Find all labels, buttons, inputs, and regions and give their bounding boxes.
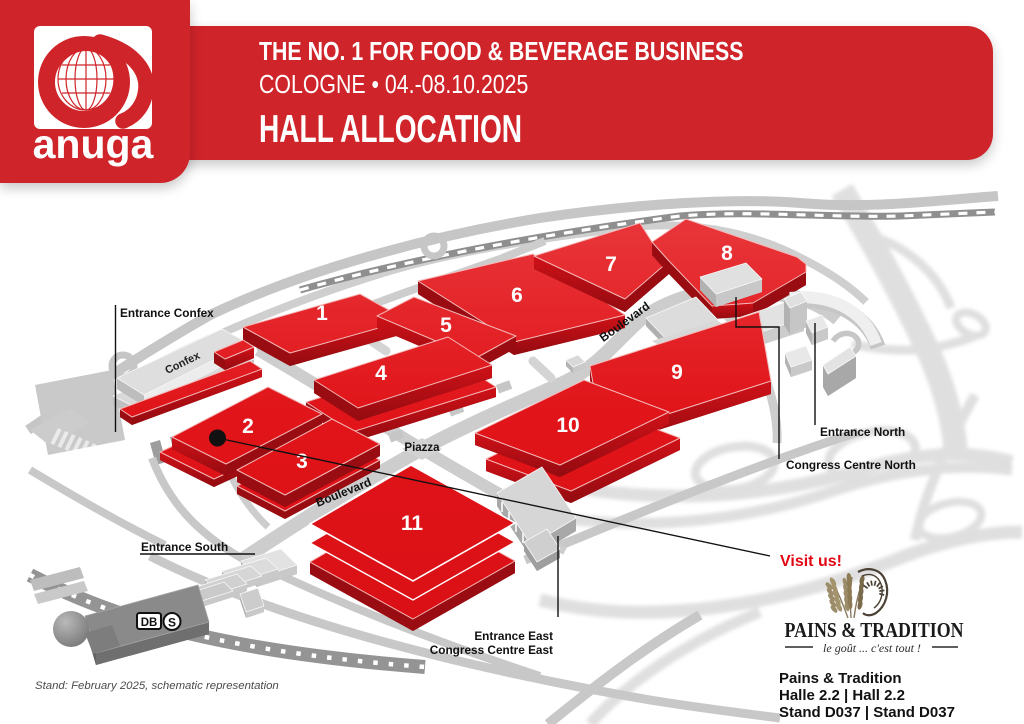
svg-text:Halle 2.2 | Hall 2.2: Halle 2.2 | Hall 2.2 <box>779 687 905 704</box>
svg-text:DB: DB <box>141 617 158 629</box>
svg-text:Congress Centre East: Congress Centre East <box>430 643 553 657</box>
svg-text:PAINS & TRADITION: PAINS & TRADITION <box>785 618 964 642</box>
svg-text:Pains & Tradition: Pains & Tradition <box>779 670 902 687</box>
svg-text:11: 11 <box>401 512 424 535</box>
svg-text:8: 8 <box>721 242 733 265</box>
svg-text:6: 6 <box>511 284 523 307</box>
svg-text:Entrance East: Entrance East <box>474 629 553 643</box>
svg-text:4: 4 <box>375 362 387 385</box>
svg-text:Entrance North: Entrance North <box>820 425 905 439</box>
svg-text:Entrance Confex: Entrance Confex <box>120 306 214 320</box>
svg-text:1: 1 <box>316 302 328 325</box>
svg-text:Visit us!: Visit us! <box>780 553 842 570</box>
svg-text:3: 3 <box>296 450 308 473</box>
svg-text:5: 5 <box>440 314 452 337</box>
svg-text:Entrance South: Entrance South <box>141 540 228 554</box>
svg-text:le goût ... c'est tout !: le goût ... c'est tout ! <box>823 641 921 655</box>
svg-text:Piazza: Piazza <box>404 442 440 454</box>
svg-text:Stand: February 2025, schemati: Stand: February 2025, schematic represen… <box>35 680 279 692</box>
svg-text:9: 9 <box>671 361 683 384</box>
svg-text:7: 7 <box>605 253 617 276</box>
svg-text:10: 10 <box>556 414 579 437</box>
svg-text:S: S <box>168 616 176 630</box>
svg-text:Stand D037 | Stand D037: Stand D037 | Stand D037 <box>779 704 955 721</box>
svg-text:2: 2 <box>242 415 254 438</box>
svg-text:Congress Centre North: Congress Centre North <box>786 458 916 472</box>
